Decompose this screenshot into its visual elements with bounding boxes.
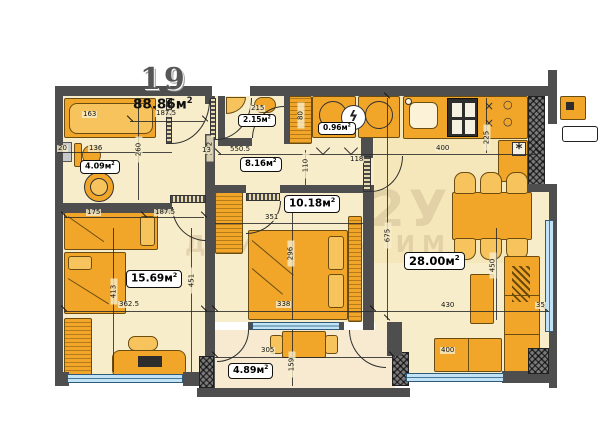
area-sup: 2 — [264, 365, 268, 371]
window — [545, 220, 554, 332]
area-sup: 2 — [331, 196, 336, 204]
desk-chair — [128, 336, 158, 351]
wall — [250, 86, 557, 96]
area-sup: 2 — [268, 116, 271, 121]
total-area-value: 88.86м — [133, 97, 187, 113]
neighbor-furniture-detail — [566, 102, 574, 110]
dim-text: 450 — [490, 253, 497, 279]
oven-pane — [465, 120, 475, 134]
pillow — [328, 274, 344, 308]
neighbor-label — [562, 126, 598, 142]
room2-door-leaf — [170, 195, 206, 203]
window — [406, 373, 504, 382]
dim-text: 338 — [276, 301, 291, 308]
faucet-icon — [405, 98, 412, 105]
dim-line — [218, 154, 538, 155]
wall — [284, 96, 290, 144]
dim-line — [215, 223, 363, 224]
bedroom-side-wardrobe — [348, 216, 362, 322]
area-value: 2.15м — [243, 115, 268, 124]
dim-text: 118 — [349, 156, 364, 163]
area-sup: 2 — [273, 158, 277, 164]
wall — [215, 185, 246, 193]
dining-chair — [480, 172, 502, 194]
dim-text: 351 — [264, 214, 279, 221]
kitchen-sink — [409, 102, 438, 129]
area-value: 4.89м — [233, 365, 264, 376]
dim-text: 35 — [535, 302, 546, 309]
bedroom-door-leaf — [246, 193, 280, 201]
room-label-wc: 2.15м2 — [238, 114, 276, 127]
burner-icon: ○ — [503, 116, 513, 127]
dim-line — [64, 217, 204, 218]
dim-line — [64, 311, 549, 312]
dim-text: 215 — [250, 105, 265, 112]
dim-line — [130, 121, 205, 122]
dim-line — [387, 98, 388, 320]
column-hatched — [528, 348, 549, 374]
room-label-utility: 0.96м2 — [318, 122, 356, 135]
neighbor-wall — [548, 70, 557, 124]
coffee-table — [470, 274, 494, 324]
room-label-bedroom2: 15.69м2 — [126, 270, 182, 288]
room-label-balcony: 4.89м2 — [228, 363, 273, 379]
dim-text: 80 — [298, 103, 305, 129]
dim-text: 136 — [88, 145, 103, 152]
total-area-label: 88.86м2 — [133, 95, 193, 113]
sofa-cushion-line — [468, 338, 469, 372]
column-hatched — [528, 96, 545, 188]
wall — [55, 96, 63, 376]
dim-text: 413 — [111, 279, 118, 305]
pillow — [328, 236, 344, 270]
dim-text: 296 — [288, 241, 295, 267]
area-value: 10.18м — [289, 198, 331, 210]
area-value: 28.00м — [409, 254, 455, 268]
dining-chair — [454, 172, 476, 194]
area-sup: 2 — [455, 253, 460, 262]
pillow — [68, 256, 92, 270]
room-label-living: 28.00м2 — [404, 252, 465, 270]
dim-text: 20 — [57, 145, 68, 152]
washing-machine-2-drum-icon — [365, 101, 393, 129]
dim-text: 225 — [484, 125, 491, 151]
dim-text: 260 — [136, 137, 143, 163]
sofa-cushion-line — [504, 334, 540, 335]
wall — [280, 185, 365, 193]
dim-text: 305 — [260, 347, 275, 354]
column-hatched — [199, 356, 214, 388]
room-label-bathroom: 4.09м2 — [80, 160, 120, 174]
wardrobe — [64, 318, 92, 376]
floor-plan: 2У ДВИЖИМИ ИМ ϟ × ○ × ○ * — [0, 0, 605, 448]
dim-text: 430 — [440, 302, 455, 309]
total-area-sup: 2 — [187, 95, 193, 105]
sofa-throw — [512, 266, 530, 302]
area-value: 4.09м — [85, 162, 111, 171]
dim-text: 159 — [289, 352, 296, 378]
dim-text: 13 — [201, 147, 212, 154]
area-sup: 2 — [348, 124, 351, 129]
dim-text: 362.5 — [118, 301, 140, 308]
dining-table — [452, 192, 532, 240]
window — [67, 374, 183, 383]
dining-chair — [506, 172, 528, 194]
dim-text: 175 — [86, 209, 101, 216]
dim-text: 550.5 — [229, 146, 251, 153]
window — [252, 322, 340, 330]
dim-line — [58, 152, 172, 153]
dim-line — [215, 357, 392, 358]
oven-pane — [465, 103, 475, 117]
burner-icon: ○ — [503, 99, 513, 110]
area-value: 0.96м — [323, 123, 348, 132]
oven-pane — [452, 120, 462, 134]
bathroom-sink-basin — [90, 178, 108, 196]
unit-number: 19 — [140, 62, 188, 97]
laptop — [138, 356, 162, 367]
area-sup: 2 — [111, 161, 114, 167]
room-label-bedroom: 10.18м2 — [284, 195, 340, 213]
dim-text: 110 — [303, 153, 310, 179]
dim-text: 675 — [385, 223, 392, 249]
pillow — [140, 216, 155, 246]
dim-text: 451 — [189, 268, 196, 294]
dim-text: 163 — [82, 111, 97, 118]
room-label-hallway: 8.16м2 — [240, 157, 282, 172]
dim-text: 400 — [440, 347, 455, 354]
dim-line — [191, 228, 192, 372]
area-value: 15.69м — [131, 273, 173, 285]
dim-text: 400 — [435, 145, 450, 152]
oven-pane — [452, 103, 462, 117]
area-value: 8.16м — [245, 159, 273, 169]
dim-text: 187.5 — [154, 209, 176, 216]
balcony-parapet — [197, 388, 410, 397]
area-sup: 2 — [173, 271, 178, 279]
balcony-chair — [325, 335, 338, 354]
